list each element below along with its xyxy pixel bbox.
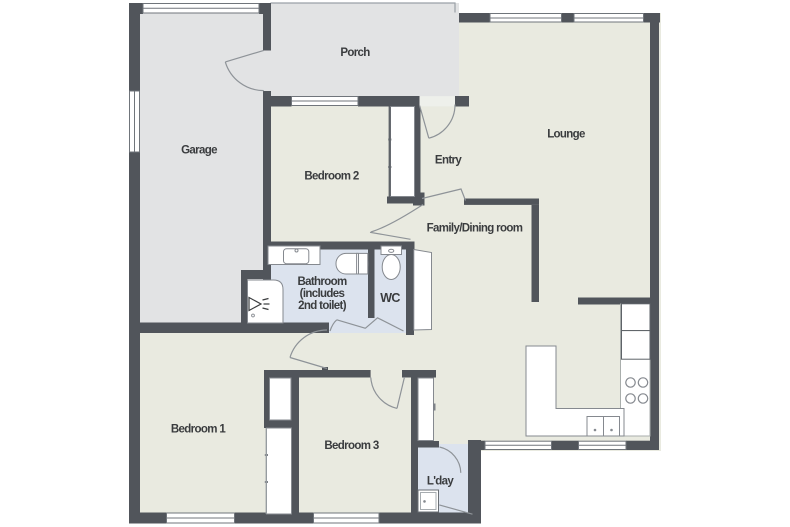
svg-text:Family/Dining room: Family/Dining room [427, 223, 523, 235]
svg-text:Bedroom 1: Bedroom 1 [171, 424, 226, 436]
svg-text:Bedroom 2: Bedroom 2 [304, 170, 358, 182]
svg-text:Lounge: Lounge [547, 129, 585, 141]
svg-text:Garage: Garage [181, 145, 217, 157]
svg-text:2nd toilet): 2nd toilet) [298, 300, 347, 312]
svg-text:WC: WC [380, 291, 400, 305]
svg-text:Entry: Entry [435, 155, 462, 167]
svg-text:Porch: Porch [340, 47, 370, 59]
svg-text:L'day: L'day [427, 476, 455, 488]
svg-text:Bathroom: Bathroom [297, 276, 347, 288]
svg-text:Bedroom 3: Bedroom 3 [324, 440, 378, 452]
svg-text:(includes: (includes [300, 288, 345, 300]
